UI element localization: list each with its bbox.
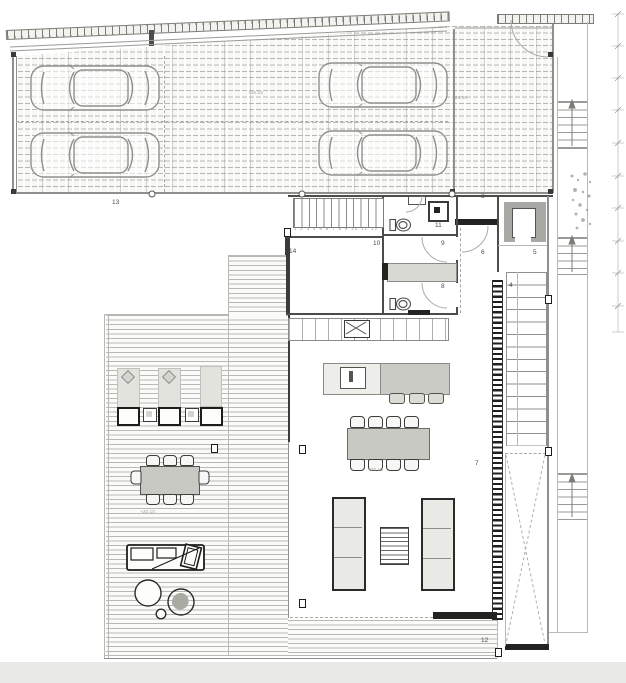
- plan-vector-overlay: [0, 0, 626, 683]
- bathroom-south-door-arc: [422, 283, 447, 308]
- toilet-icon: [390, 298, 411, 310]
- vegetation-icon: [571, 172, 592, 229]
- hallway-door-arc: [422, 237, 447, 262]
- stair-direction-arrows: [569, 100, 575, 517]
- carport-top-edge-lines: [10, 27, 447, 51]
- cooktop-x-icon: [346, 322, 366, 334]
- void-cross-icon: [506, 455, 545, 644]
- garage-door-arc: [511, 20, 548, 57]
- dimension-ticks: [612, 11, 624, 332]
- outdoor-sofa-icon: [127, 544, 204, 570]
- toilet-icon: [390, 219, 411, 231]
- post-circle-markers: [149, 191, 455, 197]
- planter-icon: [135, 580, 194, 619]
- car-icon: [319, 130, 447, 176]
- floor-plan-canvas: 1 2 3 4 5 6 7 8 9 10 11 12: [0, 0, 626, 683]
- entry-hall-door-arc: [462, 226, 488, 252]
- bathroom-north-door-arc: [406, 196, 422, 212]
- car-icon: [31, 65, 159, 111]
- car-icon: [319, 62, 447, 108]
- car-icon: [31, 132, 159, 178]
